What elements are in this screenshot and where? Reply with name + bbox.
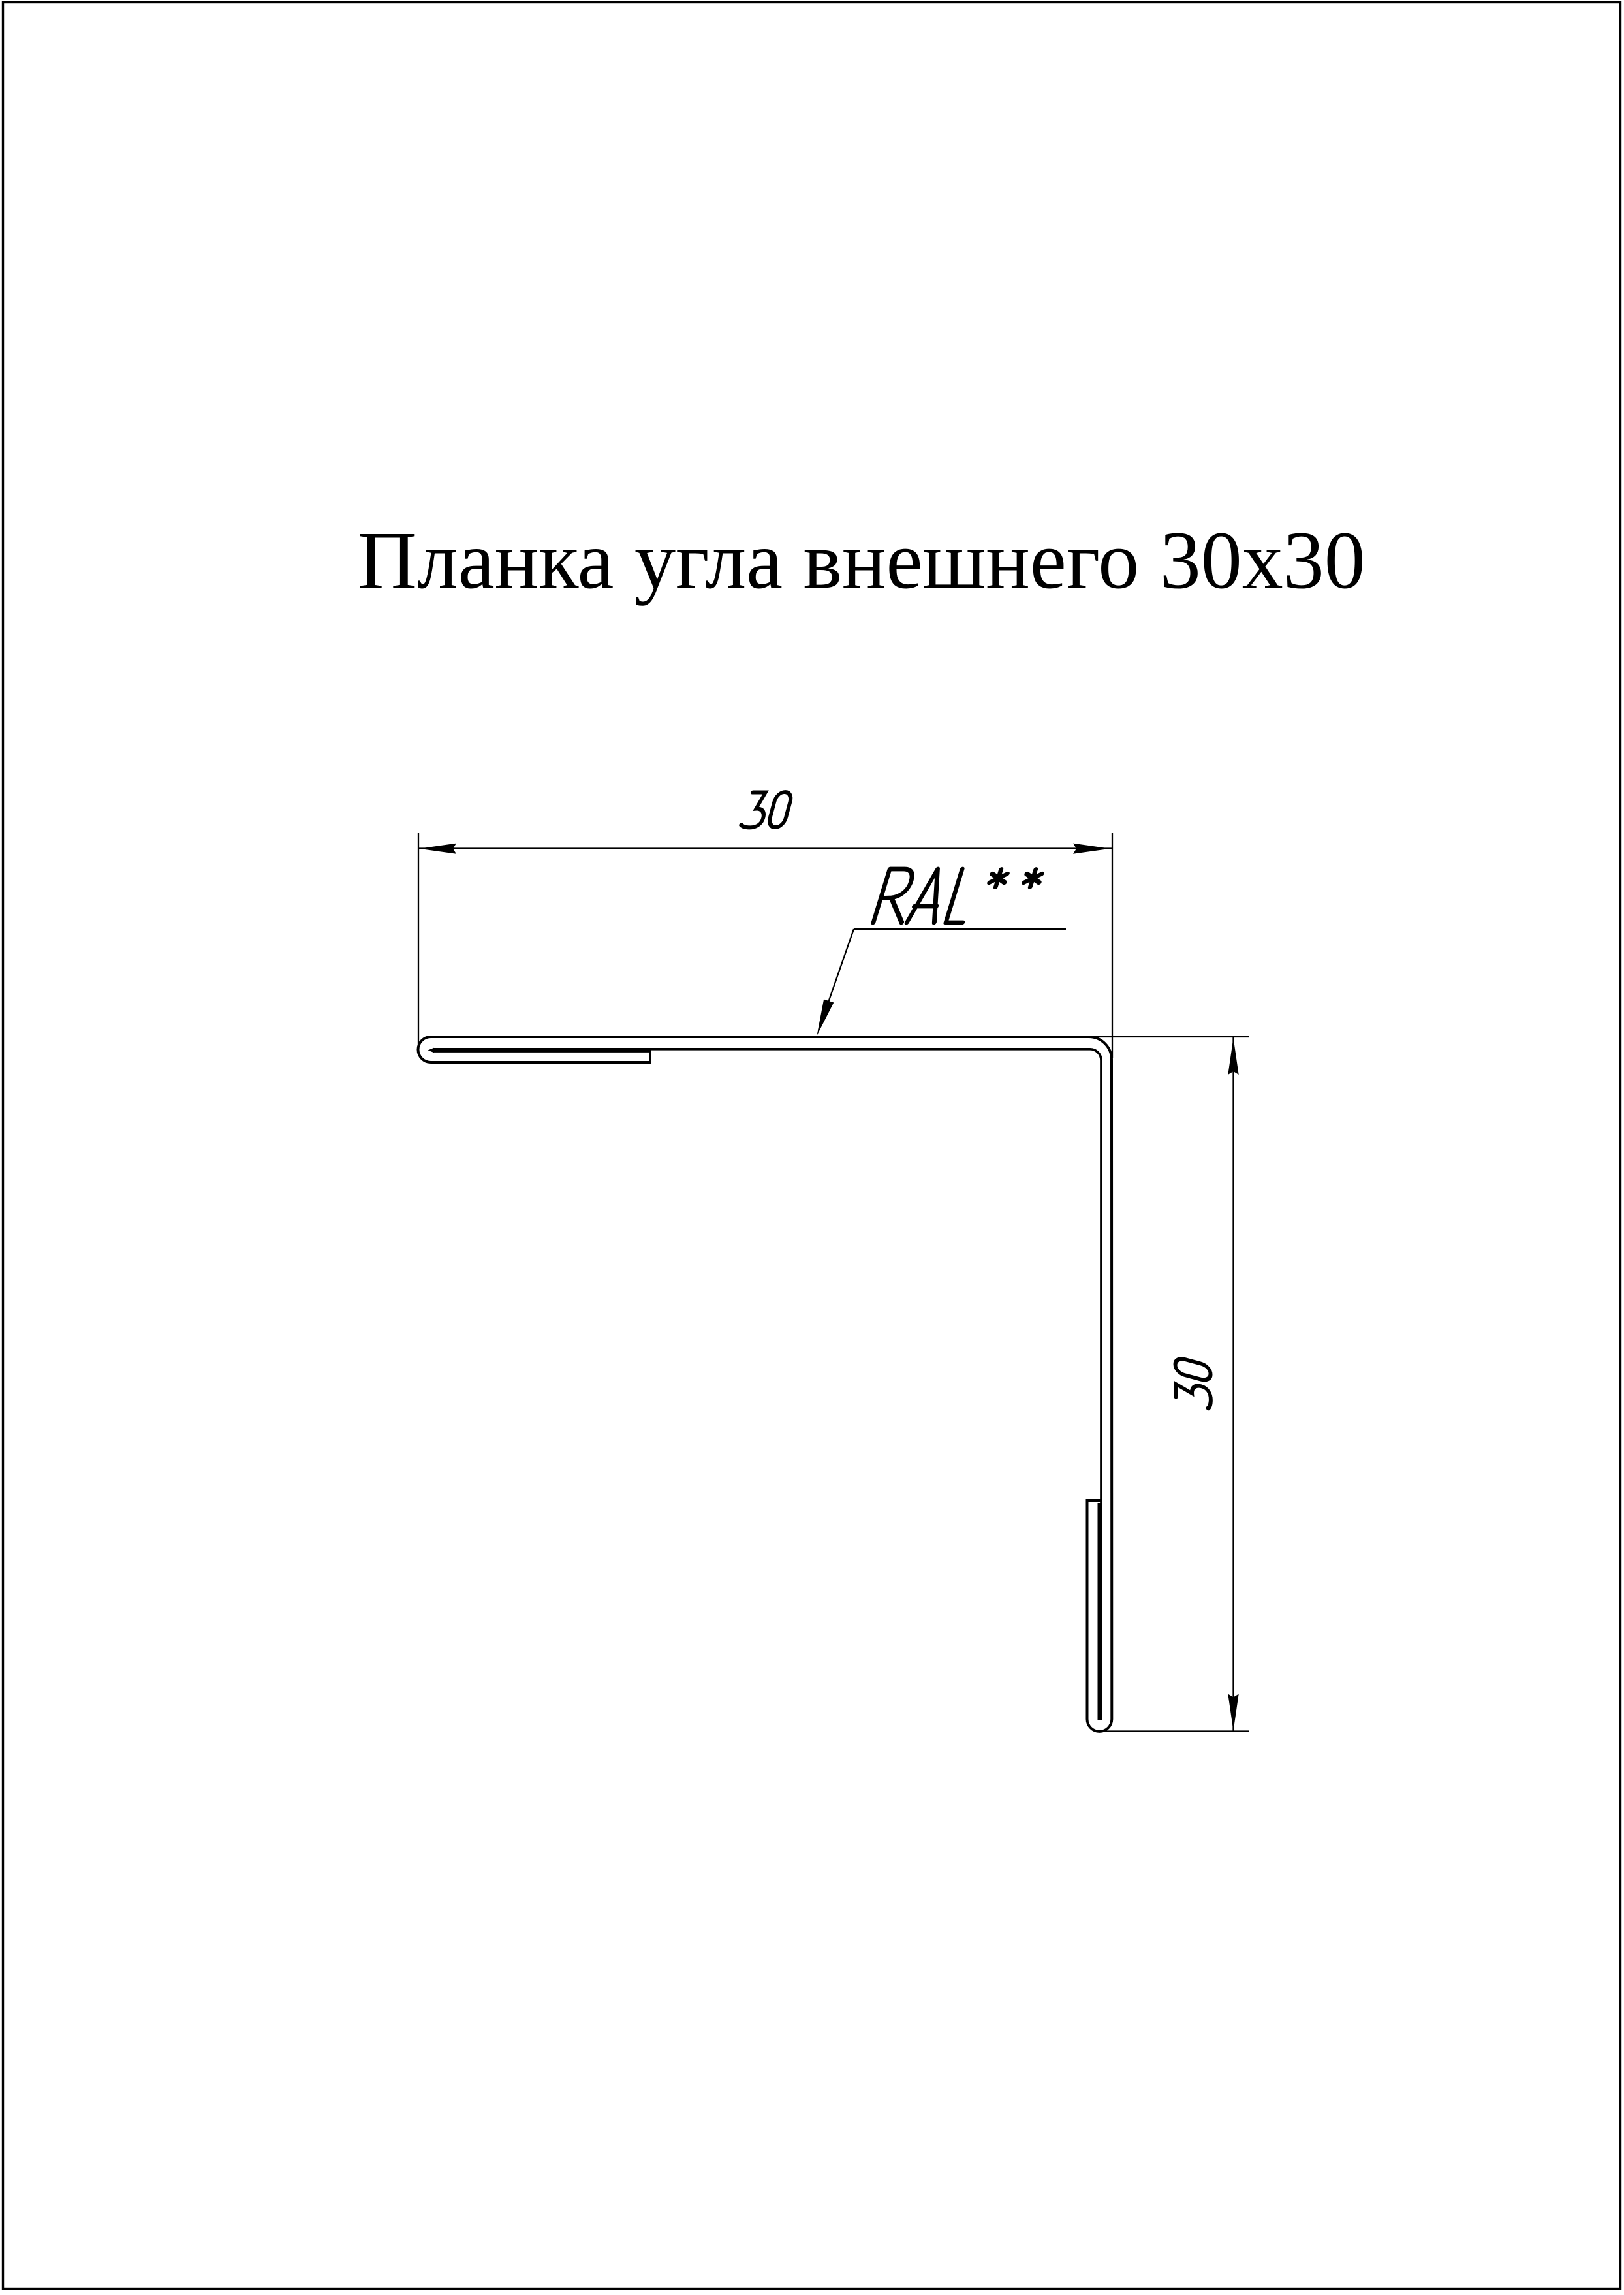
svg-text:Планка угла внешнего 30х30: Планка угла внешнего 30х30 [358, 516, 1366, 607]
